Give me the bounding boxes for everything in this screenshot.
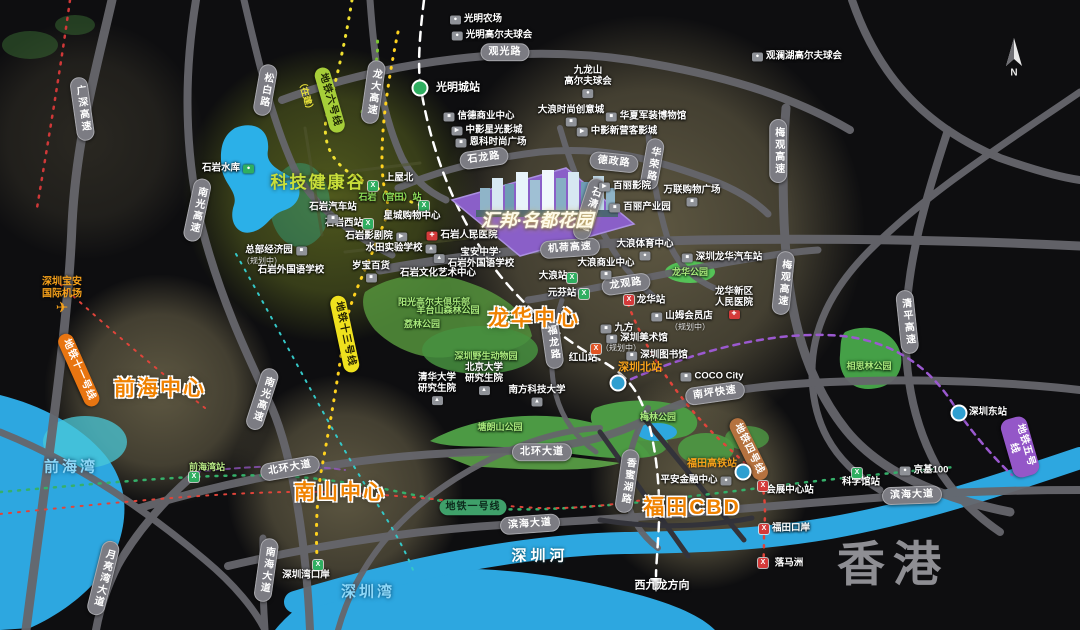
poi-enke-fashion-plaza-icon: ■ <box>455 138 466 147</box>
icon-futian-hsr-rail <box>735 464 752 481</box>
station-futian-hsr: 福田高铁站 <box>687 458 737 470</box>
road-beihuan-avenue-west-text: 北环大道 <box>267 459 312 478</box>
poi-dalang-business-center: ■大浪商业中心 <box>577 259 634 280</box>
poi-dalang-sports-center-icon: ● <box>639 251 650 260</box>
station-futian-checkpoint: 福田口岸 <box>772 524 810 535</box>
park-tanglangshan-text: 塘朗山公园 <box>477 422 522 432</box>
icon-science-museum-metro: X <box>852 468 862 478</box>
road-binhai-avenue-west: 滨海大道 <box>499 513 560 535</box>
poi-longhua-bus-station-text: 深圳龙华汽车站 <box>696 253 763 264</box>
metro-line6-label-text: 地铁六号线 <box>317 72 343 128</box>
station-yuanfen: 元芬站 <box>548 289 577 300</box>
poi-shiyan-theater-icon: ▶ <box>396 232 407 241</box>
area-longhua-center: 龙华中心 <box>488 307 580 331</box>
poi-headquarters-economic-park-text: 总部经济园 <box>245 246 293 257</box>
metro-line1-label: 地铁一号线 <box>440 499 507 515</box>
metro-line13-label-text: 地铁十三号线 <box>333 301 358 368</box>
road-dezheng-lu-text: 德政路 <box>597 155 631 170</box>
station-shenzhen-north: 深圳北站 <box>618 362 662 375</box>
poi-pku-graduate-school-text: 北京大学 研究生院 <box>465 363 503 385</box>
park-yangtaishan-forest-text: 羊台山森林公园 <box>416 305 479 315</box>
area-nanshan-center: 南山中心 <box>294 481 386 505</box>
poi-shenzhen-art-museum-icon: ■ <box>606 334 617 343</box>
poi-guangming-farm-icon: ● <box>450 15 461 24</box>
poi-huaxia-military-museum-icon: ■ <box>606 112 617 121</box>
poi-shenzhen-library-text: 深圳图书馆 <box>640 351 688 362</box>
poi-jiulongshan-golf-text: 九龙山 高尔夫球会 <box>564 66 612 88</box>
station-shenzhen-east-text: 深圳东站 <box>969 408 1007 419</box>
poi-wanlian-shopping-plaza-icon: ■ <box>686 197 697 206</box>
icon-yuanfen-metro: X <box>579 289 589 299</box>
area-tech-health-valley-text: 科技健康谷 <box>271 173 366 193</box>
road-beihuan-avenue-east-text: 北环大道 <box>520 446 564 458</box>
poi-kingkey-100-text: 京基100 <box>914 466 949 477</box>
poi-shiyan-reservoir-text: 石岩水库 <box>202 164 240 175</box>
road-beihuan-avenue-east: 北环大道 <box>512 443 572 461</box>
poi-dalang-fashion-town-text: 大浪时尚创意城 <box>538 106 605 117</box>
poi-zhongying-xinyingke-cinema-text: 中影新营客影城 <box>591 127 658 138</box>
poi-xingcheng-shopping-center-text: 星城购物中心 <box>383 212 440 223</box>
road-nanping-expressway-text: 南坪快速 <box>692 384 737 402</box>
metro-line5-label-text: 地铁五号线 <box>1002 421 1037 473</box>
area-qianhai-center-text: 前海中心 <box>114 377 206 401</box>
area-nanshan-center-text: 南山中心 <box>294 481 386 505</box>
park-lilin-text: 荔林公园 <box>404 319 440 329</box>
park-longhua-text: 龙华公园 <box>672 267 708 277</box>
poi-shiyan-people-hospital-text: 石岩人民医院 <box>440 231 497 242</box>
poi-headquarters-economic-park: 总部经济园■ <box>245 246 307 257</box>
station-convention-center-text: 会展中心站 <box>766 486 814 497</box>
poi-guangming-golf-icon: ● <box>452 31 463 40</box>
poi-shuitian-experimental-school-text: 水田实验学校 <box>365 244 422 255</box>
property-title-text: 汇邦·名都花园 <box>481 211 594 232</box>
poi-enke-fashion-plaza: ■恩科时尚广场 <box>455 138 526 149</box>
station-qianhaiwan-text: 前海湾站 <box>189 462 225 472</box>
station-futian-checkpoint-text: 福田口岸 <box>772 524 810 535</box>
poi-sams-club-icon: ■ <box>651 312 662 321</box>
poi-kingkey-100-icon: ● <box>900 466 911 475</box>
road-dezheng-lu: 德政路 <box>589 151 640 174</box>
poi-suibao-department-store-icon: ■ <box>365 273 376 282</box>
road-nanping-expressway: 南坪快速 <box>684 380 746 406</box>
metro-line6-status-text: （在建） <box>296 77 316 114</box>
area-futian-cbd: 福田CBD <box>643 496 741 520</box>
icon-futian-checkpoint-metro: X <box>759 524 769 534</box>
poi-baoan-airport-text: 深圳宝安 国际机场 <box>42 277 82 300</box>
road-xiangmihu-lu: 香蜜湖路 <box>614 448 640 514</box>
metro-line11-label-text: 地铁十一号线 <box>60 338 97 403</box>
poi-shiyan-bus-station-icon: ■ <box>327 214 338 223</box>
road-guangshen-expressway: 广深高速 <box>69 76 95 142</box>
icon-lok-ma-chau-metro: X <box>758 558 768 568</box>
road-nanguang-expressway-north-text: 南光高速 <box>186 185 207 234</box>
road-meiguan-expressway-south: 梅观高速 <box>771 250 795 315</box>
poi-xingcheng-shopping-center: 星城购物中心 <box>383 212 440 223</box>
park-longhua: 龙华公园 <box>672 267 708 277</box>
park-lilin: 荔林公园 <box>404 319 440 329</box>
water-shenzhen-river-text: 深圳河 <box>511 547 568 564</box>
road-songbai-lu-text: 松白路 <box>256 71 274 108</box>
metro-line11-label: 地铁十一号线 <box>56 331 102 409</box>
station-hongshan: 红山站 <box>569 354 598 365</box>
road-nanhai-avenue-text: 南海大道 <box>257 545 275 594</box>
road-jihe-expressway-text: 机荷高速 <box>548 241 593 256</box>
poi-shiyan-reservoir-icon: ● <box>243 164 254 173</box>
road-binhai-avenue-east-text: 滨海大道 <box>890 488 934 501</box>
road-longda-expressway-text: 龙大高速 <box>364 67 382 116</box>
poi-shiyan-culture-art-center-text: 石岩文化艺术中心 <box>400 269 476 280</box>
road-longda-expressway: 龙大高速 <box>360 59 386 125</box>
poi-suibao-department-store: ■岁宝百货 <box>352 262 390 283</box>
station-longhua-text: 龙华站 <box>637 296 666 307</box>
poi-shenzhen-safari-park-text: 深圳野生动物园 <box>454 351 517 361</box>
map-canvas: 观光路松白路广深高速龙大高速南光高速石龙路德政路华荣路梅观高速梅观高速机荷高速龙… <box>0 0 1080 630</box>
road-qingping-expressway-text: 清平高速 <box>899 298 915 347</box>
road-meiguan-expressway-north-text: 梅观高速 <box>772 127 784 175</box>
poi-coco-city-text: COCO City <box>694 372 743 383</box>
poi-huaxia-military-museum: ■华夏军装博物馆 <box>606 112 687 123</box>
station-dalang-text: 大浪站 <box>539 272 568 283</box>
poi-zhongying-xingguang-cinema: ▶中影星光影城 <box>451 126 522 137</box>
station-science-museum: 科学馆站 <box>842 478 880 489</box>
station-lok-ma-chau-text: 落马洲 <box>775 559 804 570</box>
metro-line6-label: 地铁六号线 <box>313 66 346 135</box>
road-shilong-lu: 石龙路 <box>459 146 510 170</box>
dir-west-kowloon-text: 西九龙方向 <box>635 580 690 593</box>
poi-dalang-fashion-town: 大浪时尚创意城■ <box>538 106 605 127</box>
area-tech-health-valley: 科技健康谷 <box>271 173 366 193</box>
poi-longhua-bus-station-icon: ■ <box>682 253 693 262</box>
road-binhai-avenue-east: 滨海大道 <box>882 485 943 505</box>
icon-hongshan-metro: X <box>591 344 601 354</box>
poi-longhua-district-hospital: ✚龙华新区 人民医院 <box>715 287 753 319</box>
station-shenzhenwan-checkpoint-text: 深圳湾口岸 <box>282 571 330 582</box>
poi-shiyan-foreign-language-school-text: 石岩外国语学校 <box>258 266 325 277</box>
poi-longhua-bus-station: ■深圳龙华汽车站 <box>682 253 763 264</box>
poi-wanlian-shopping-plaza-text: 万联购物广场 <box>663 186 720 197</box>
road-guangshen-expressway-text: 广深高速 <box>73 84 91 133</box>
road-nanguang-expressway-south: 南光高速 <box>244 366 280 432</box>
metro-line13-label: 地铁十三号线 <box>329 294 360 374</box>
poi-pingan-finance-center-icon: ● <box>721 476 732 485</box>
poi-shenzhen-library: ■深圳图书馆 <box>626 351 688 362</box>
station-dalang: 大浪站 <box>539 272 568 283</box>
poi-sams-club: ■山姆会员店 <box>651 312 713 323</box>
poi-shiyan-people-hospital: ✚石岩人民医院 <box>426 231 497 242</box>
poi-guangming-farm-text: 光明农场 <box>464 15 502 26</box>
poi-baili-industrial-park: ■百丽产业园 <box>609 203 671 214</box>
road-guanguang-lu: 观光路 <box>481 43 530 61</box>
poi-shuitian-experimental-school: 水田实验学校▲ <box>365 244 436 255</box>
water-qianhai-bay-text: 前海湾 <box>44 458 98 475</box>
road-shilong-lu-text: 石龙路 <box>467 150 501 166</box>
area-qianhai-center: 前海中心 <box>114 377 206 401</box>
park-xiangsilin: 相思林公园 <box>846 361 891 371</box>
road-yueliangwan-avenue: 月亮湾大道 <box>85 539 120 617</box>
road-meiguan-expressway-south-text: 梅观高速 <box>775 259 791 308</box>
station-longhua: 龙华站 <box>637 296 666 307</box>
road-yueliangwan-avenue-text: 月亮湾大道 <box>90 548 116 609</box>
poi-shiyan-bus-station-text: 石岩汽车站 <box>309 203 357 214</box>
metro-line1-label-text: 地铁一号线 <box>446 501 501 513</box>
icon-qianhaiwan-metro: X <box>189 472 199 482</box>
icon-dalang-metro: X <box>567 273 577 283</box>
poi-jiufang-mall-icon: ■ <box>600 324 611 333</box>
icon-shenzhen-north-rail <box>610 375 627 392</box>
poi-pku-graduate-school-icon: ▲ <box>478 386 489 395</box>
poi-baili-cinema-text: 百丽影院 <box>613 182 651 193</box>
road-songbai-lu: 松白路 <box>252 63 278 117</box>
road-beihuan-avenue-west: 北环大道 <box>259 454 321 482</box>
station-convention-center: 会展中心站 <box>766 486 814 497</box>
station-shenzhen-east: 深圳东站 <box>969 408 1007 419</box>
road-jihe-expressway: 机荷高速 <box>539 237 600 259</box>
icon-shiyan-west-metro: X <box>363 219 373 229</box>
park-meilin-text: 梅林公园 <box>640 412 676 422</box>
water-shenzhen-river: 深圳河 <box>511 547 568 564</box>
icon-shiyan-guantian-metro: X <box>419 201 429 211</box>
road-huarong-lu-text: 华荣路 <box>643 145 661 182</box>
station-shiyan-guantian-text: 石岩（官田）站 <box>358 192 421 202</box>
poi-shenzhen-safari-park: 深圳野生动物园 <box>454 351 517 361</box>
poi-longhua-district-hospital-icon: ✚ <box>728 310 739 319</box>
station-yuanfen-text: 元芬站 <box>548 289 577 300</box>
sub-sams-club-text: （规划中） <box>670 322 710 331</box>
icon-longhua-metro: X <box>624 295 634 305</box>
road-meiguan-expressway-north: 梅观高速 <box>769 119 787 183</box>
park-meilin: 梅林公园 <box>640 412 676 422</box>
station-shangwubei-text: 上屋北 <box>385 174 414 185</box>
poi-baoan-airport: ✈深圳宝安 国际机场 <box>42 277 82 316</box>
poi-sustech-text: 南方科技大学 <box>508 386 565 397</box>
poi-kingkey-100: ●京基100 <box>900 466 949 477</box>
poi-shiyan-theater: 石岩影剧院▶ <box>345 232 407 243</box>
label-hongkong: 香港 <box>837 537 949 592</box>
icon-shangwubei-metro: X <box>368 181 378 191</box>
area-futian-cbd-text: 福田CBD <box>643 496 741 520</box>
poi-dalang-business-center-icon: ■ <box>600 270 611 279</box>
poi-mission-hills-golf-text: 观澜湖高尔夫球会 <box>766 52 842 63</box>
poi-headquarters-economic-park-icon: ■ <box>296 246 307 255</box>
poi-dalang-business-center-text: 大浪商业中心 <box>577 259 634 270</box>
poi-zhongying-xingguang-cinema-text: 中影星光影城 <box>465 126 522 137</box>
poi-tsinghua-graduate-school-icon: ▲ <box>431 396 442 405</box>
station-futian-hsr-text: 福田高铁站 <box>687 458 737 470</box>
water-shenzhen-bay: 深圳湾 <box>341 583 395 600</box>
poi-baoan-middle-school-icon: ▲ <box>434 255 445 264</box>
poi-guangming-golf-text: 光明高尔夫球会 <box>466 31 533 42</box>
road-guanguang-lu-text: 观光路 <box>489 46 522 58</box>
poi-shiyan-culture-art-center: 石岩文化艺术中心 <box>400 269 476 280</box>
poi-huaxia-military-museum-text: 华夏军装博物馆 <box>620 112 687 123</box>
poi-tsinghua-graduate-school: 清华大学 研究生院▲ <box>418 373 456 405</box>
poi-suibao-department-store-text: 岁宝百货 <box>352 262 390 273</box>
station-guangmingcheng: 光明城站 <box>436 82 480 95</box>
poi-guangming-golf: ●光明高尔夫球会 <box>452 31 533 42</box>
icon-convention-center-metro: X <box>758 481 768 491</box>
road-nanguang-expressway-south-text: 南光高速 <box>249 374 275 423</box>
icon-shenzhenwan-checkpoint-metro: X <box>313 560 323 570</box>
poi-longhua-district-hospital-text: 龙华新区 人民医院 <box>715 287 753 309</box>
poi-wanlian-shopping-plaza: 万联购物广场■ <box>663 186 720 207</box>
compass-n-label-text: N <box>1010 67 1017 79</box>
station-guangmingcheng-text: 光明城站 <box>436 82 480 95</box>
poi-sams-club-text: 山姆会员店 <box>665 312 713 323</box>
poi-guangming-farm: ●光明农场 <box>450 15 502 26</box>
metro-line6-status: （在建） <box>296 77 316 114</box>
metro-line5-label: 地铁五号线 <box>999 414 1041 479</box>
poi-shiyan-theater-text: 石岩影剧院 <box>345 232 393 243</box>
park-xiangsilin-text: 相思林公园 <box>846 361 891 371</box>
poi-coco-city-icon: ■ <box>680 372 691 381</box>
area-longhua-center-text: 龙华中心 <box>488 307 580 331</box>
road-xiangmihu-lu-text: 香蜜湖路 <box>618 456 636 505</box>
icon-guangmingcheng-rail <box>412 80 429 97</box>
poi-pingan-finance-center-text: 平安金融中心 <box>660 476 717 487</box>
park-yangtaishan-forest: 羊台山森林公园 <box>416 305 479 315</box>
poi-dalang-sports-center-text: 大浪体育中心 <box>616 240 673 251</box>
road-nanguang-expressway-north: 南光高速 <box>182 177 212 243</box>
road-qingping-expressway: 清平高速 <box>895 289 919 354</box>
poi-shiyan-bus-station: ■石岩汽车站 <box>309 203 357 224</box>
poi-mission-hills-golf: ●观澜湖高尔夫球会 <box>752 52 842 63</box>
station-lok-ma-chau: 落马洲 <box>775 559 804 570</box>
road-nanhai-avenue: 南海大道 <box>253 537 279 603</box>
station-shiyan-guantian: 石岩（官田）站 <box>358 192 421 202</box>
station-shenzhenwan-checkpoint: 深圳湾口岸 <box>282 571 330 582</box>
poi-xinde-business-center: ■信德商业中心 <box>443 112 514 123</box>
dir-west-kowloon: 西九龙方向 <box>635 580 690 593</box>
poi-dalang-fashion-town-icon: ■ <box>565 117 576 126</box>
poi-pingan-finance-center: 平安金融中心● <box>660 476 731 487</box>
park-tanglangshan: 塘朗山公园 <box>477 422 522 432</box>
poi-coco-city: ■COCO City <box>680 372 743 383</box>
station-shangwubei: 上屋北 <box>385 174 414 185</box>
poi-mission-hills-golf-icon: ● <box>752 52 763 61</box>
poi-baili-industrial-park-icon: ■ <box>609 203 620 212</box>
label-hongkong-text: 香港 <box>837 537 949 592</box>
water-shenzhen-bay-text: 深圳湾 <box>341 583 395 600</box>
poi-shiyan-foreign-language-school: 石岩外国语学校 <box>258 266 325 277</box>
icon-shenzhen-east-rail <box>951 405 968 422</box>
poi-shiyan-reservoir: 石岩水库● <box>202 164 254 175</box>
poi-zhongying-xinyingke-cinema: ▶中影新营客影城 <box>577 127 658 138</box>
poi-baili-cinema-icon: ▶ <box>599 182 610 191</box>
poi-jiulongshan-golf-icon: ● <box>582 89 593 98</box>
poi-pku-graduate-school: 北京大学 研究生院▲ <box>465 363 503 395</box>
station-science-museum-text: 科学馆站 <box>842 478 880 489</box>
map-labels-layer: 观光路松白路广深高速龙大高速南光高速石龙路德政路华荣路梅观高速梅观高速机荷高速龙… <box>0 0 1080 630</box>
poi-shiyan-people-hospital-icon: ✚ <box>426 231 437 240</box>
station-shenzhen-north-text: 深圳北站 <box>618 362 662 375</box>
road-binhai-avenue-west-text: 滨海大道 <box>508 517 553 532</box>
poi-enke-fashion-plaza-text: 恩科时尚广场 <box>469 138 526 149</box>
poi-zhongying-xinyingke-cinema-icon: ▶ <box>577 127 588 136</box>
station-hongshan-text: 红山站 <box>569 354 598 365</box>
poi-xinde-business-center-text: 信德商业中心 <box>457 112 514 123</box>
poi-xinde-business-center-icon: ■ <box>443 112 454 121</box>
poi-baoan-airport-icon: ✈ <box>55 301 70 316</box>
poi-baili-cinema: ▶百丽影院 <box>599 182 651 193</box>
poi-tsinghua-graduate-school-text: 清华大学 研究生院 <box>418 373 456 395</box>
poi-sustech: ▲南方科技大学 <box>508 386 565 407</box>
poi-sustech-icon: ▲ <box>531 397 542 406</box>
water-qianhai-bay: 前海湾 <box>44 458 98 475</box>
station-qianhaiwan: 前海湾站 <box>189 462 225 472</box>
property-title: 汇邦·名都花园 <box>481 211 594 232</box>
poi-shenzhen-library-icon: ■ <box>626 351 637 360</box>
poi-jiulongshan-golf: 九龙山 高尔夫球会● <box>564 66 612 98</box>
compass-n-label: N <box>1010 67 1017 79</box>
sub-sams-club: （规划中） <box>670 322 710 331</box>
poi-zhongying-xingguang-cinema-icon: ▶ <box>451 126 462 135</box>
